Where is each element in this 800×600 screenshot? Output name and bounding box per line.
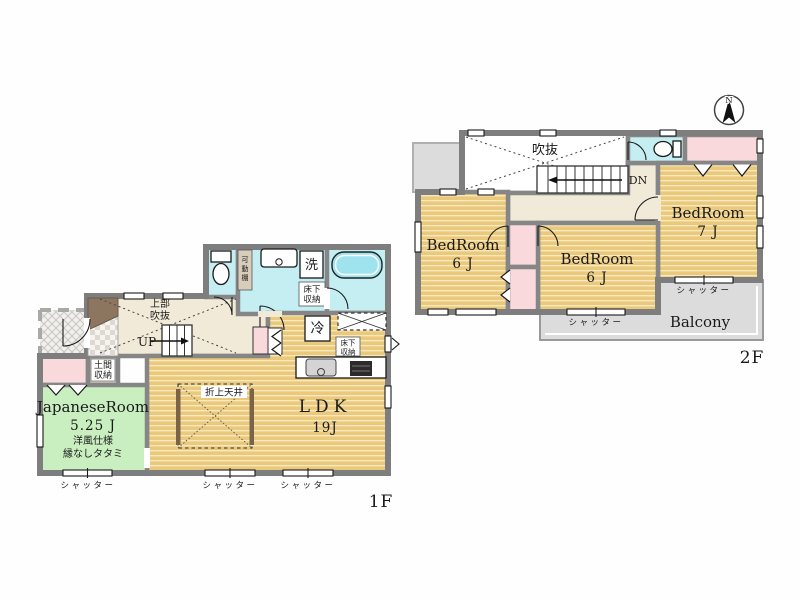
void-label: 吹抜 (532, 142, 558, 158)
bedroom-left-name: BedRoom (426, 236, 499, 254)
underfloor-wash-label-line2: 収納 (303, 294, 320, 305)
bedroom-left-bottom-window-2 (456, 309, 496, 315)
back-door (385, 336, 399, 352)
shutter-window-1 (63, 468, 112, 478)
shutter-label-1: シャッター (60, 481, 115, 491)
japanese-room-size: 5.25 J (70, 418, 116, 434)
bedroom-right-door-gap (655, 195, 661, 221)
void-window-1 (468, 130, 484, 136)
closet-2f-a (508, 223, 538, 267)
bedroom-right-size: 7 J (697, 224, 718, 240)
compass: N (715, 96, 744, 125)
shutter-window-2 (205, 468, 255, 478)
closet-2f-b (508, 267, 538, 312)
mini-closet-1f (253, 327, 268, 354)
stairs-down-label: DN (629, 174, 648, 187)
bedroom-center-shutter-window (567, 307, 625, 317)
japanese-room-opening (144, 448, 150, 468)
floor-2-plan: 吹抜 DN BedRoom 6 J BedRoom 6 J BedRoom 7 … (413, 130, 764, 368)
upper-void-label-line1: 上部 (150, 297, 170, 310)
washbasin (261, 249, 297, 267)
closet-1f (40, 356, 88, 385)
ldk-name: LDK (299, 397, 352, 417)
bedroom-left-side-window (415, 222, 421, 252)
balcony-label: Balcony (670, 313, 731, 331)
bedroom-right-window-2 (757, 226, 763, 248)
floor-2-label: 2F (740, 348, 765, 368)
underfloor-kitchen-label-line1: 床下 (341, 338, 356, 348)
bedroom-right-shutter-window (675, 275, 733, 285)
floor-1-plan: 上部 吹抜 UP 可 動 棚 洗 床下 収納 冷 床下 収納 土間 収納 折上天… (35, 247, 399, 512)
japanese-room-tatami: 縁なしタタミ (63, 447, 123, 460)
bedroom-center-size: 6 J (586, 270, 607, 286)
stairs-up-label: UP (138, 335, 156, 349)
void-window-2 (540, 130, 556, 136)
movable-shelf-char3: 棚 (242, 273, 249, 282)
japanese-room-side-window (37, 415, 43, 447)
bedroom-left-bottom-window-1 (428, 309, 448, 315)
ldk-side-window (385, 386, 391, 408)
bath-door-gap (324, 288, 330, 309)
bedroom-left-top-window-2 (478, 189, 494, 195)
compass-north-label: N (725, 96, 733, 106)
japanese-room-spec: 洋風仕様 (73, 434, 113, 447)
fridge-label: 冷 (311, 321, 325, 337)
underfloor-kitchen-label-line2: 収納 (341, 347, 356, 357)
upper-void-label-line2: 吹抜 (150, 309, 170, 322)
closet-2f-top (685, 135, 760, 163)
folding-door-1f (268, 328, 282, 356)
bathtub (332, 252, 382, 278)
floorplan-page: 上部 吹抜 UP 可 動 棚 洗 床下 収納 冷 床下 収納 土間 収納 折上天… (0, 0, 800, 600)
washer-label: 洗 (305, 258, 318, 273)
bedroom-right-name: BedRoom (671, 204, 744, 222)
closet-2f-window (757, 139, 763, 153)
toilet-fixture-1f (211, 251, 231, 285)
stairs-down (537, 166, 628, 193)
underfloor-wash-label-line1: 床下 (303, 284, 321, 295)
japanese-room-name: JapaneseRoom (35, 398, 149, 416)
bedroom-left-size: 6 J (452, 256, 473, 272)
kitchen-counter (296, 357, 386, 378)
bedroom-right-window-1 (757, 196, 763, 218)
shutter-label-2: シャッター (202, 481, 257, 491)
entrance-door-gap (84, 318, 90, 348)
floorplan-drawing: 上部 吹抜 UP 可 動 棚 洗 床下 収納 冷 床下 収納 土間 収納 折上天… (0, 0, 800, 600)
bedroom-left-top-window-1 (440, 189, 456, 195)
toilet-fixture-2f (654, 141, 681, 157)
floor-1-label: 1F (369, 492, 394, 512)
doma-label-line1: 土間 (94, 359, 112, 371)
movable-shelf-char1: 可 (242, 256, 249, 264)
lower-roof (413, 143, 462, 192)
toilet-window-2f (660, 130, 676, 136)
raised-ceiling-label: 折上天井 (205, 387, 243, 399)
washroom-door-gap (258, 311, 282, 317)
doma-label-line2: 収納 (94, 369, 112, 381)
shutter-label-3: シャッター (280, 481, 335, 491)
movable-shelf-char2: 動 (242, 264, 249, 273)
shutter-label-2f-2: シャッター (676, 286, 731, 296)
ldk-size: 19J (312, 420, 338, 436)
bedroom-center-name: BedRoom (560, 250, 633, 268)
shutter-window-3 (283, 468, 333, 478)
hall-window-1 (124, 293, 144, 299)
shutter-label-2f-1: シャッター (568, 318, 623, 328)
cupboard-dashed-box (338, 313, 386, 330)
